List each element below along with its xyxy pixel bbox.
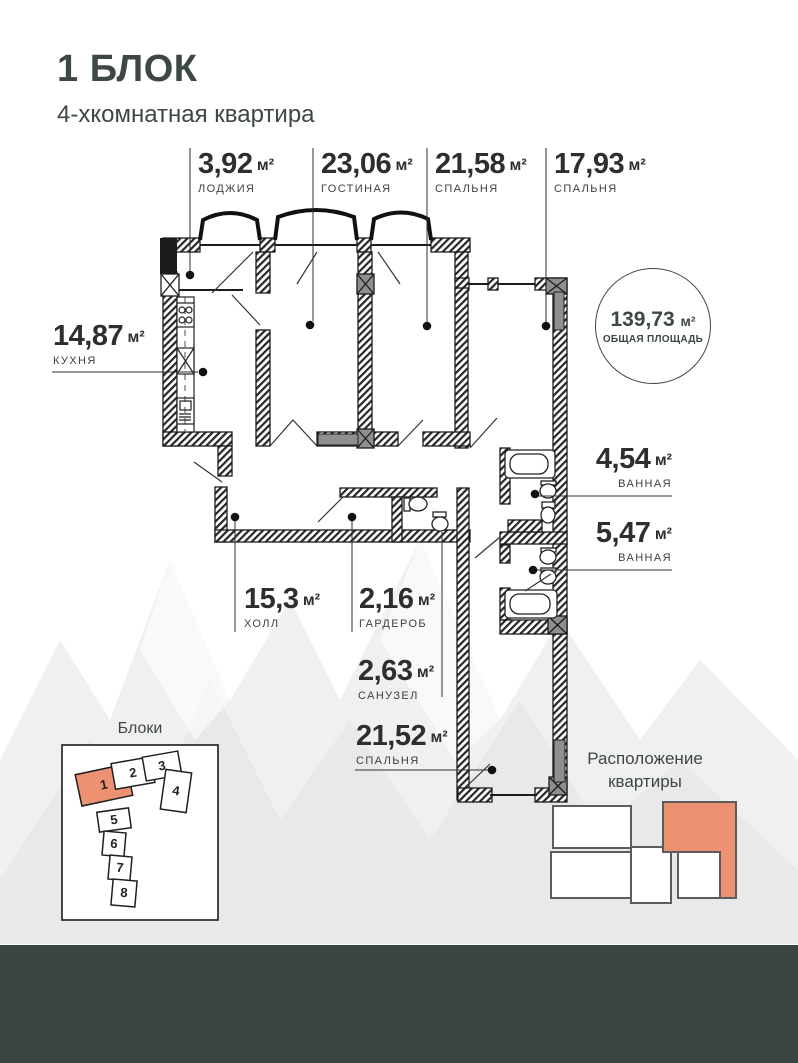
sink-icon: [177, 348, 194, 374]
blocks-map[interactable]: 1 2 3 4 5: [62, 745, 218, 920]
page-subtitle: 4-хкомнатная квартира: [57, 101, 315, 129]
blocks-map-title: Блоки: [62, 720, 218, 738]
kitchen-fixtures: [177, 297, 194, 432]
room-label-bedroom-2: 17,93 м² СПАЛЬНЯ: [554, 148, 646, 195]
room-label-bathroom-2: 5,47 м² ВАННАЯ: [596, 517, 672, 564]
total-area-badge: 139,73 м² ОБЩАЯ ПЛОЩАДЬ: [595, 268, 711, 384]
footer-bar: [0, 945, 798, 1063]
toilet-icon: [404, 497, 427, 511]
stove-icon: [177, 303, 194, 327]
page-title: 1 БЛОК: [57, 48, 315, 91]
header: 1 БЛОК 4-хкомнатная квартира: [57, 48, 315, 129]
room-label-loggia: 3,92 м² ЛОДЖИЯ: [198, 148, 274, 195]
svg-text:7: 7: [116, 860, 125, 876]
block-8[interactable]: 8: [111, 879, 137, 907]
svg-text:8: 8: [120, 885, 129, 901]
room-label-living: 23,06 м² ГОСТИНАЯ: [321, 148, 413, 195]
room-label-wardrobe: 2,16 м² ГАРДЕРОБ: [359, 583, 435, 630]
room-label-bathroom-1: 4,54 м² ВАННАЯ: [596, 443, 672, 490]
block-6[interactable]: 6: [102, 831, 126, 857]
room-label-bedroom-1: 21,58 м² СПАЛЬНЯ: [435, 148, 527, 195]
svg-text:6: 6: [110, 836, 119, 852]
room-label-wc: 2,63 м² САНУЗЕЛ: [358, 655, 434, 702]
room-label-hall: 15,3 м² ХОЛЛ: [244, 583, 320, 630]
washbasin-icon: [540, 548, 556, 564]
room-label-bedroom-3: 21,52 м² СПАЛЬНЯ: [356, 720, 448, 767]
toilet-icon: [432, 512, 448, 531]
block-5[interactable]: 5: [97, 808, 131, 832]
block-7[interactable]: 7: [108, 855, 132, 881]
bay-windows: [200, 210, 431, 240]
shaft-solid-wall: [160, 238, 177, 274]
washbasin-icon: [540, 481, 556, 498]
toilet-icon: [541, 502, 555, 523]
block-4[interactable]: 4: [160, 769, 191, 812]
room-label-kitchen: 14,87 м² КУХНЯ: [53, 320, 145, 367]
location-map-title: Расположение квартиры: [545, 748, 745, 794]
flat-plan-page: 1 2 3 4 5: [0, 0, 798, 1063]
appliance-icon: [177, 398, 194, 424]
